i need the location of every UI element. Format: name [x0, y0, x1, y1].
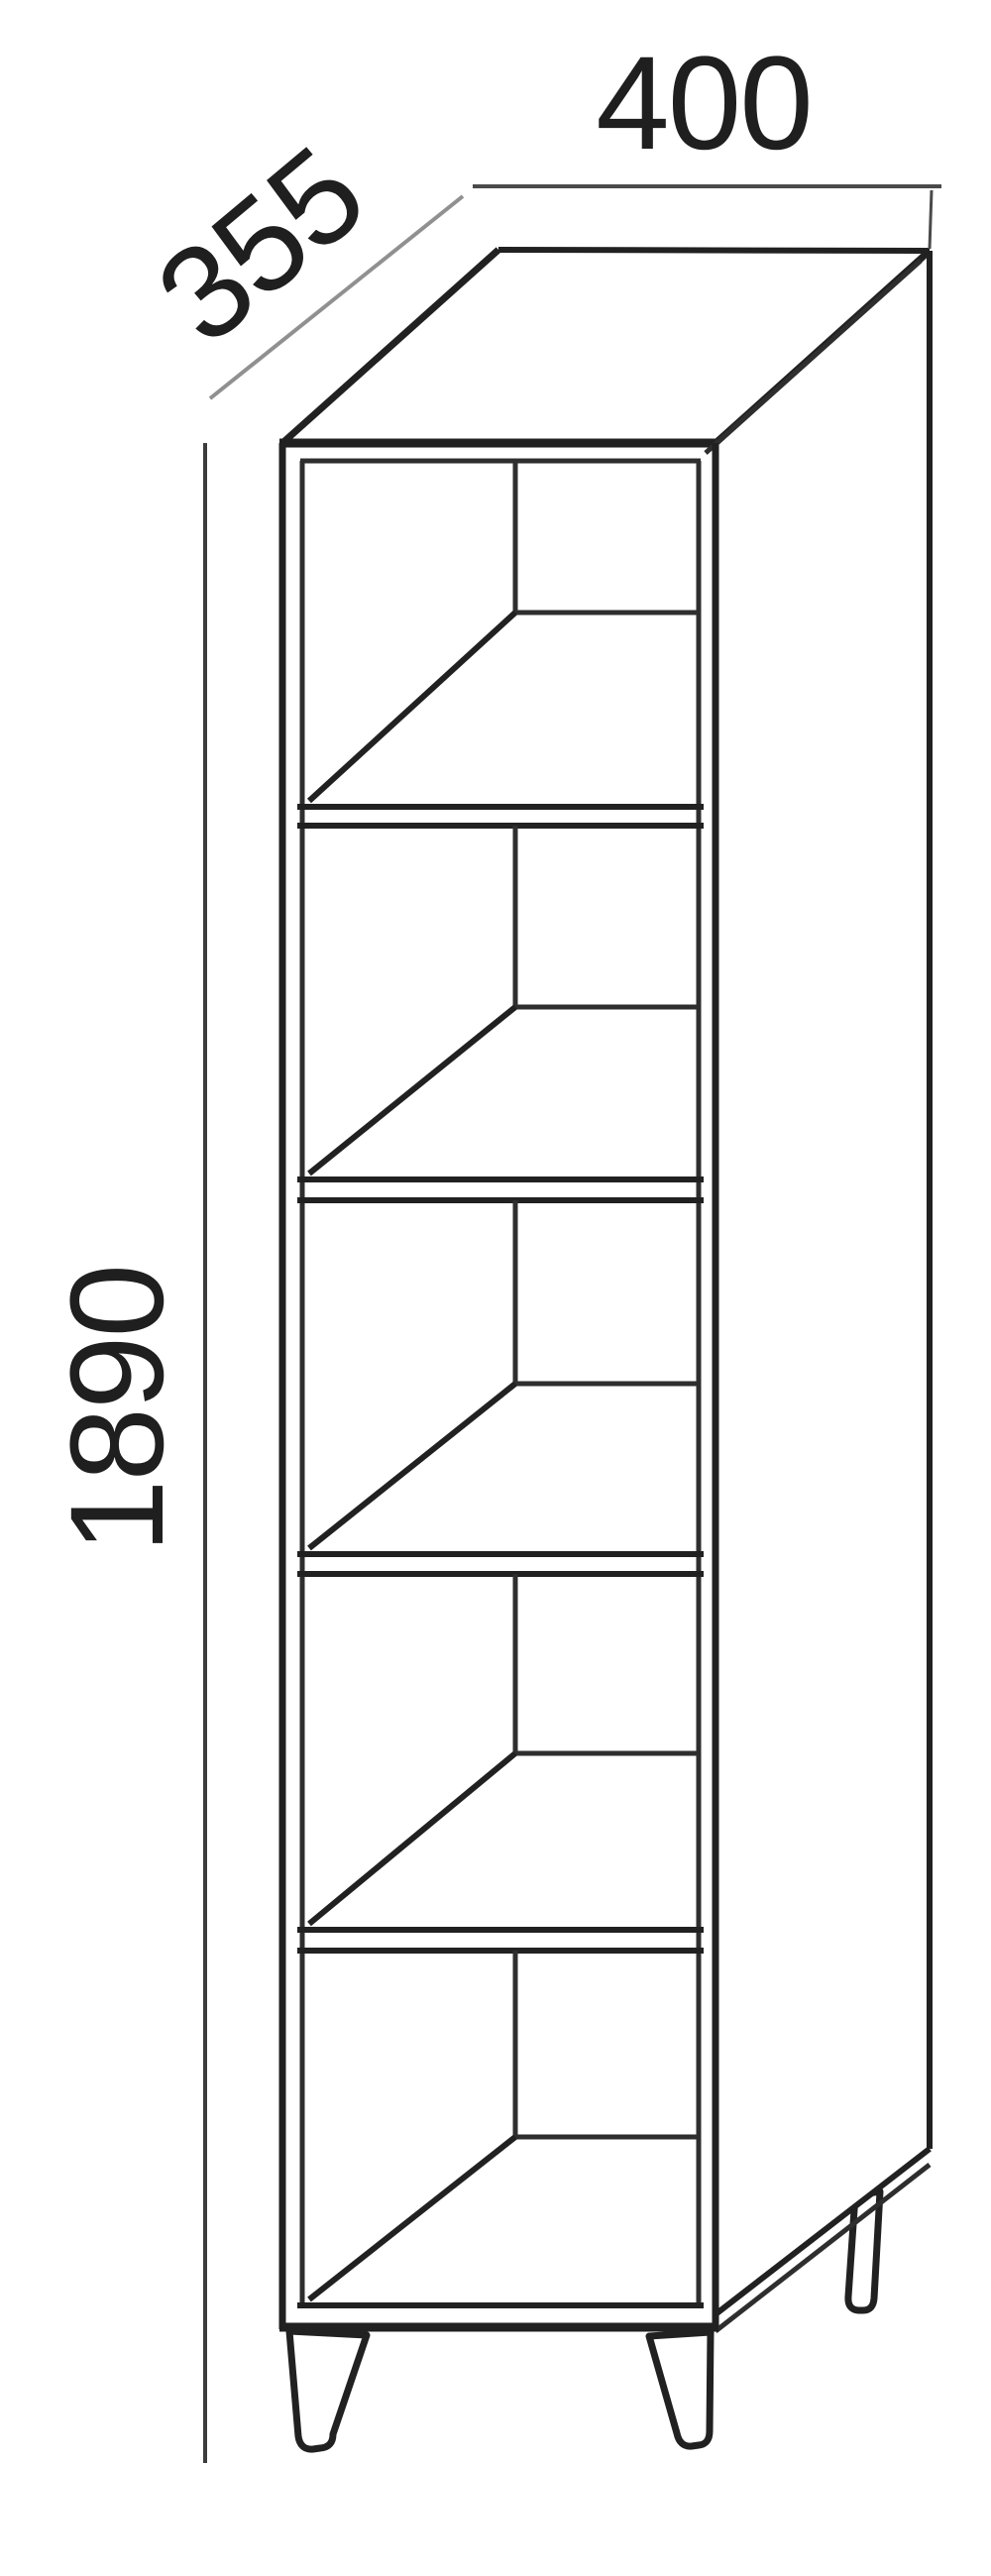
panel-fills: [282, 250, 930, 2331]
width-extension-line: [930, 190, 932, 249]
side-face-fill: [716, 251, 930, 2314]
width-dimension-label: 400: [596, 30, 812, 177]
furniture-dimension-diagram: 400 355 1890: [0, 0, 991, 2576]
cabinet-drawing: 400 355 1890: [0, 0, 991, 2576]
depth-dimension-label: 355: [131, 120, 390, 372]
top-back-edge: [498, 250, 930, 251]
front-right-leg: [649, 2332, 711, 2446]
front-left-leg: [289, 2331, 367, 2449]
height-dimension-label: 1890: [44, 1266, 191, 1553]
front-face-fill: [282, 443, 716, 2331]
